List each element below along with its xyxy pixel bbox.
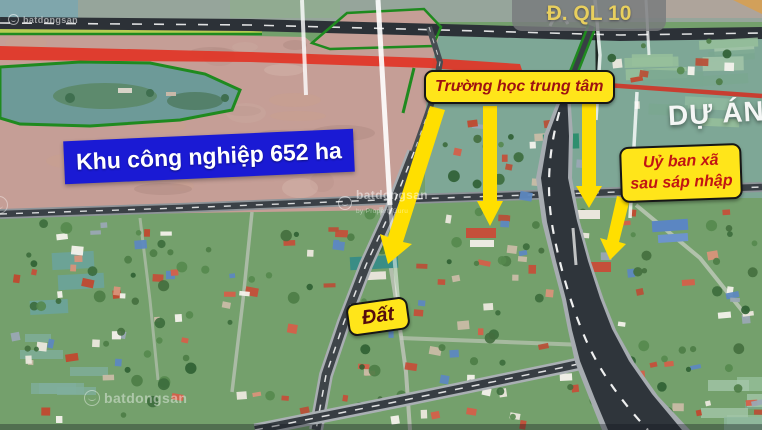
watermark: batdongsan [84, 390, 187, 406]
lane [232, 212, 252, 392]
island-trees [146, 89, 154, 97]
watermark: batdongsan by PropertyGuru [338, 189, 428, 217]
school-building [466, 228, 496, 238]
island-building [166, 92, 176, 96]
island-trees [221, 94, 229, 102]
label-commune-committee-line2: sau sáp nhập [630, 172, 733, 193]
watermark-brand: batdongsan [23, 15, 78, 25]
watermark-logo-icon [8, 14, 19, 25]
factory-building [658, 233, 688, 243]
distant-green-field [230, 0, 340, 18]
label-commune-committee: Uỷ ban xã sau sáp nhập [619, 143, 743, 203]
annotated-aerial-map: batdongsan batdongsan by PropertyGuru ba… [0, 0, 762, 430]
arrow-to-committee [600, 196, 630, 260]
watermark-logo-icon [338, 196, 352, 210]
watermark-brand: batdongsan [104, 390, 187, 406]
watermark [0, 196, 8, 214]
watermark-logo-icon [84, 390, 100, 406]
island-building [118, 88, 132, 93]
school-building [470, 240, 494, 247]
watermark-logo-icon [0, 196, 8, 214]
label-school-center: Trường học trung tâm [424, 70, 615, 104]
watermark-byline: by PropertyGuru [356, 208, 408, 215]
label-project: DỰ ÁN Đ [667, 94, 762, 133]
photo-edge-shadow [0, 424, 762, 430]
label-highway-ql10: Đ. QL 10 [512, 0, 666, 31]
island-trees [65, 93, 75, 103]
watermark-brand: batdongsan [356, 189, 428, 201]
watermark: batdongsan [8, 14, 78, 25]
label-commune-committee-line1: Uỷ ban xã [643, 152, 719, 172]
connector-road-dashes [255, 361, 592, 430]
